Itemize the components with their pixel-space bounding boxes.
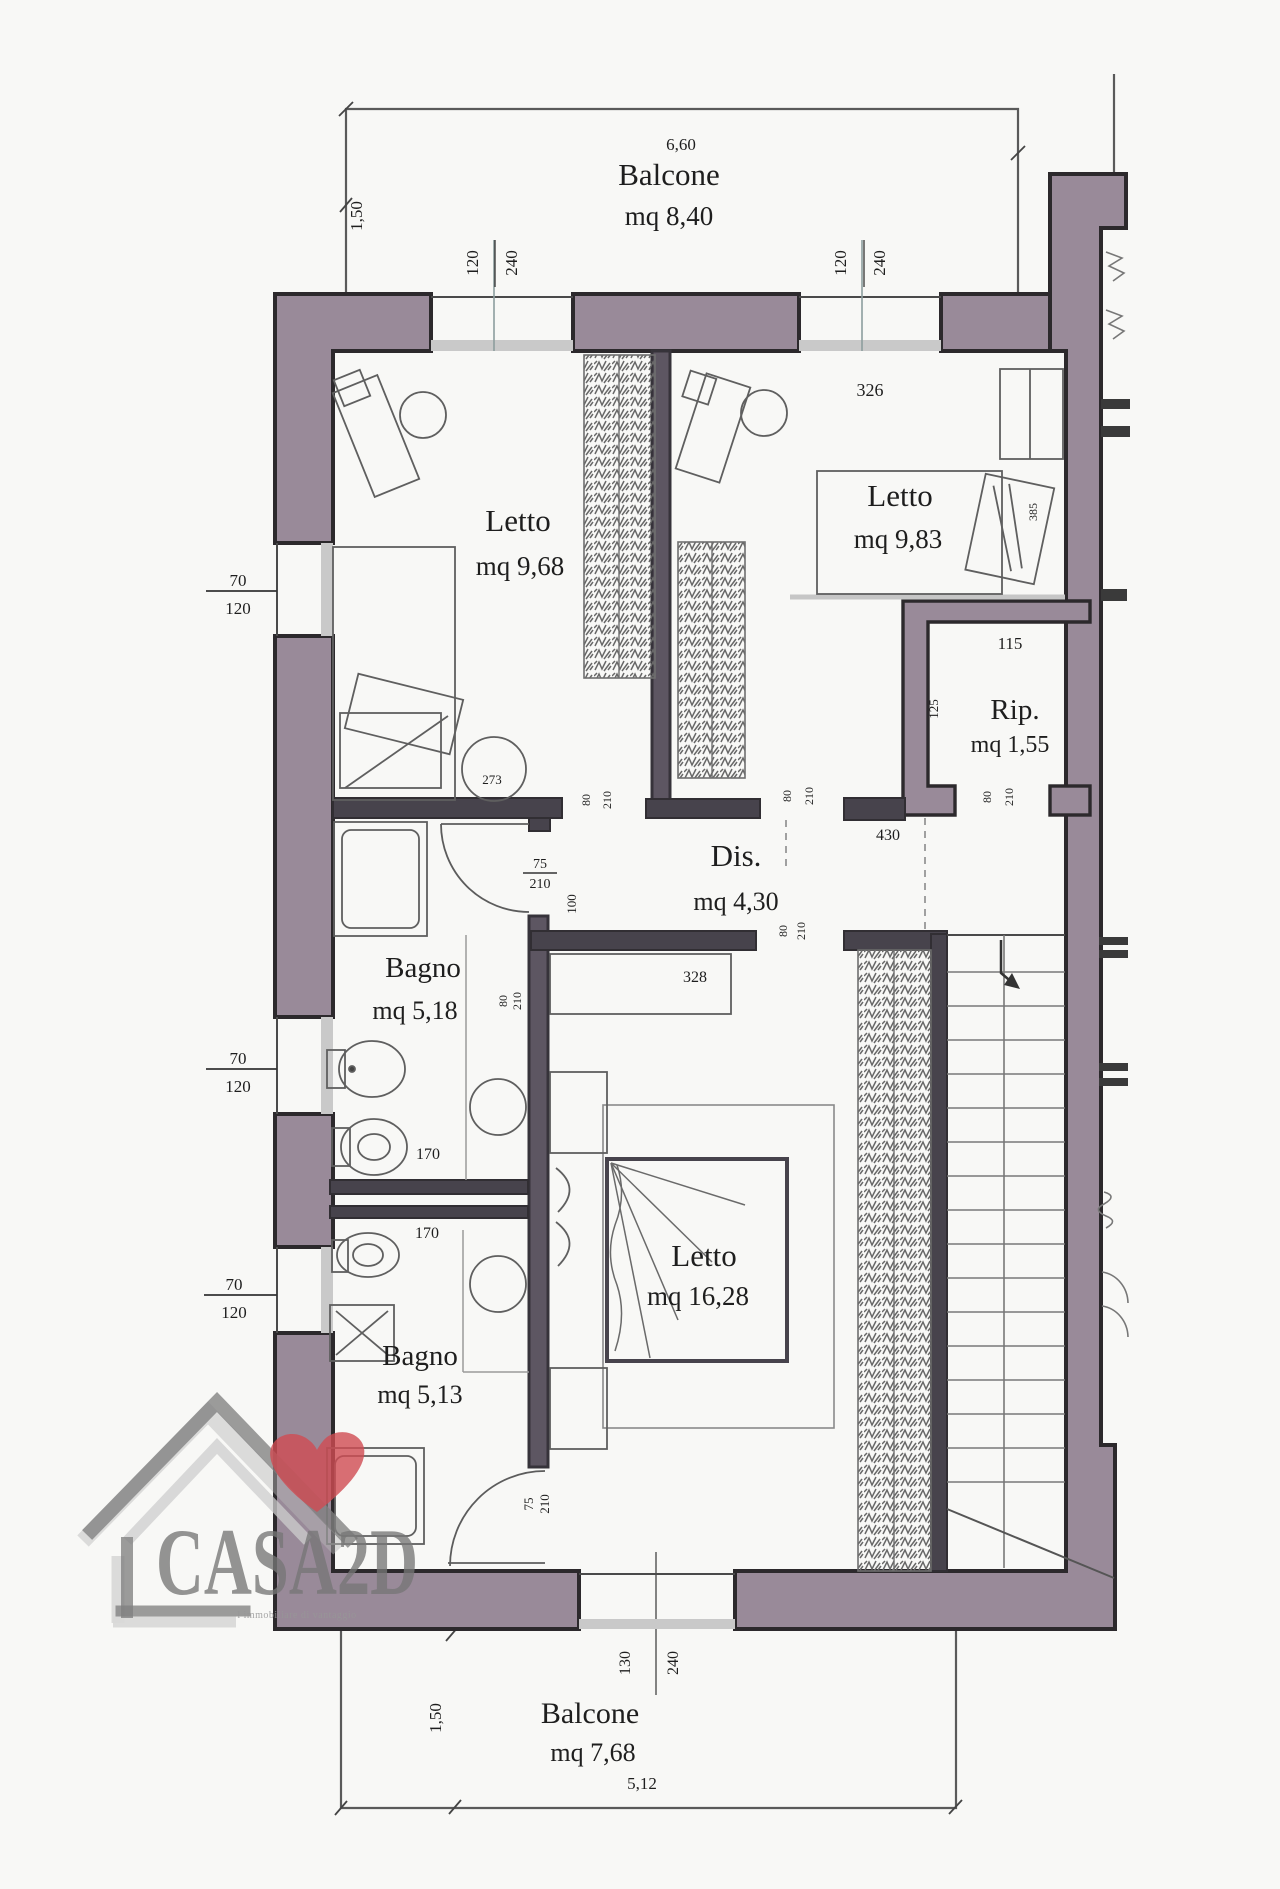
svg-text:100: 100 (564, 894, 579, 914)
svg-text:130: 130 (617, 1651, 634, 1675)
svg-text:l immobiliare di vantaggio: l immobiliare di vantaggio (237, 1610, 356, 1621)
svg-text:80: 80 (980, 791, 994, 803)
svg-text:Balcone: Balcone (618, 157, 720, 192)
svg-text:Letto: Letto (671, 1238, 736, 1273)
svg-text:430: 430 (876, 827, 900, 844)
svg-text:210: 210 (794, 922, 808, 940)
svg-text:1,50: 1,50 (347, 201, 366, 231)
svg-text:210: 210 (802, 787, 816, 805)
svg-text:326: 326 (857, 380, 884, 400)
svg-text:mq 5,13: mq 5,13 (377, 1380, 462, 1409)
svg-text:75: 75 (521, 1498, 536, 1511)
svg-text:120: 120 (225, 1077, 251, 1096)
svg-text:80: 80 (780, 790, 794, 802)
svg-text:mq 7,68: mq 7,68 (550, 1738, 635, 1767)
svg-text:240: 240 (502, 250, 521, 276)
svg-text:70: 70 (230, 1049, 247, 1068)
svg-text:mq 9,68: mq 9,68 (476, 551, 565, 581)
svg-text:mq 1,55: mq 1,55 (971, 732, 1050, 758)
svg-text:Bagno: Bagno (382, 1340, 458, 1372)
svg-text:70: 70 (226, 1275, 243, 1294)
svg-text:80: 80 (496, 995, 510, 1007)
svg-text:mq 8,40: mq 8,40 (625, 201, 714, 231)
svg-text:Bagno: Bagno (385, 952, 461, 984)
svg-text:80: 80 (776, 925, 790, 937)
svg-text:mq 4,30: mq 4,30 (693, 887, 778, 916)
svg-text:273: 273 (482, 772, 502, 787)
svg-text:Rip.: Rip. (990, 694, 1039, 726)
svg-text:170: 170 (415, 1225, 439, 1242)
svg-text:CASA2D: CASA2D (156, 1509, 418, 1614)
svg-text:240: 240 (665, 1651, 682, 1675)
svg-text:120: 120 (225, 599, 251, 618)
svg-text:Letto: Letto (485, 503, 550, 538)
svg-text:mq 9,83: mq 9,83 (854, 524, 943, 554)
svg-text:210: 210 (510, 992, 524, 1010)
svg-text:Letto: Letto (867, 478, 932, 513)
svg-text:210: 210 (600, 791, 614, 809)
svg-text:1,50: 1,50 (426, 1703, 445, 1733)
svg-text:mq 5,18: mq 5,18 (372, 996, 457, 1025)
svg-text:210: 210 (1002, 788, 1016, 806)
svg-text:170: 170 (416, 1146, 440, 1163)
svg-text:115: 115 (998, 634, 1023, 653)
svg-text:Balcone: Balcone (541, 1697, 639, 1730)
svg-text:120: 120 (221, 1303, 247, 1322)
svg-text:210: 210 (537, 1494, 552, 1514)
svg-text:328: 328 (683, 969, 707, 986)
svg-text:75: 75 (533, 857, 547, 872)
svg-text:120: 120 (463, 250, 482, 276)
svg-text:6,60: 6,60 (666, 135, 696, 154)
svg-text:mq 16,28: mq 16,28 (647, 1281, 749, 1311)
svg-text:5,12: 5,12 (627, 1774, 657, 1793)
svg-text:120: 120 (831, 250, 850, 276)
svg-text:240: 240 (870, 250, 889, 276)
svg-text:80: 80 (579, 794, 593, 806)
svg-text:Dis.: Dis. (711, 838, 762, 873)
svg-text:385: 385 (1026, 503, 1040, 521)
svg-text:125: 125 (926, 699, 941, 719)
svg-text:210: 210 (530, 877, 551, 892)
svg-text:70: 70 (230, 571, 247, 590)
